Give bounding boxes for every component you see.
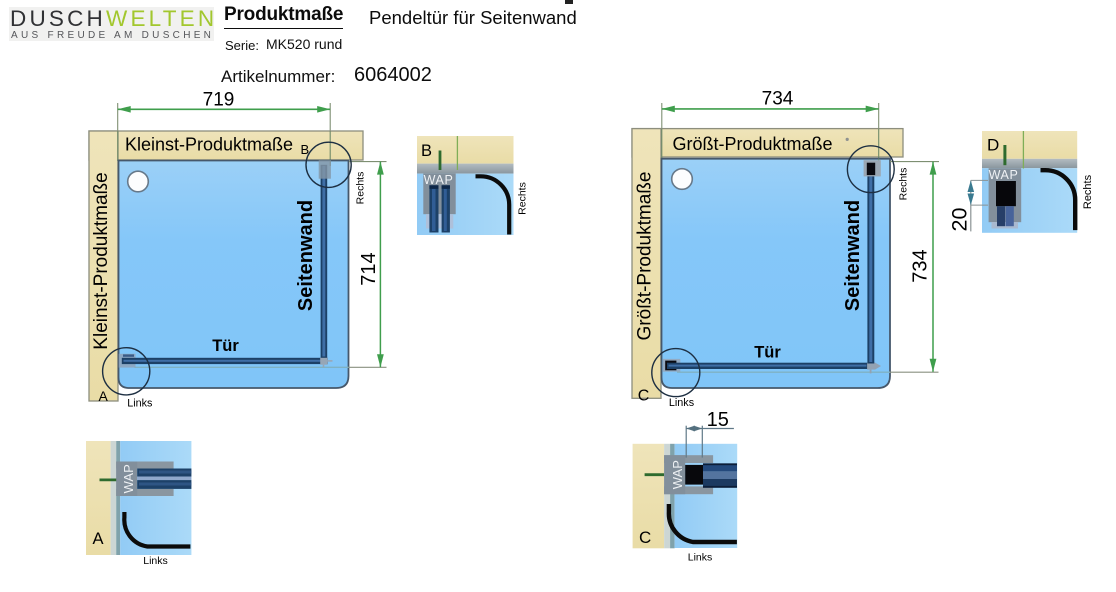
svg-text:Kleinst-Produktmaße: Kleinst-Produktmaße <box>91 172 112 349</box>
svg-text:B: B <box>421 142 432 160</box>
svg-text:Seitenwand: Seitenwand <box>842 200 864 311</box>
svg-text:WAP: WAP <box>670 460 685 489</box>
svg-text:20: 20 <box>948 208 972 232</box>
svg-text:Tür: Tür <box>212 337 239 355</box>
svg-text:719: 719 <box>203 90 235 111</box>
svg-text:WAP: WAP <box>424 173 454 187</box>
svg-text:Seitenwand: Seitenwand <box>295 200 317 311</box>
svg-text:Rechts: Rechts <box>354 172 366 205</box>
svg-text:15: 15 <box>707 409 729 431</box>
svg-text:Größt-Produktmaße: Größt-Produktmaße <box>672 134 832 154</box>
svg-text:714: 714 <box>358 252 380 285</box>
svg-text:A: A <box>99 388 109 404</box>
svg-text:Rechts: Rechts <box>897 168 909 201</box>
svg-text:Links: Links <box>688 552 713 564</box>
svg-text:C: C <box>639 528 651 547</box>
svg-text:WAP: WAP <box>121 464 136 493</box>
svg-text:D: D <box>987 136 999 155</box>
svg-text:WAP: WAP <box>989 168 1019 182</box>
svg-text:734: 734 <box>910 249 932 282</box>
svg-text:Links: Links <box>143 555 168 567</box>
svg-text:Tür: Tür <box>754 344 781 362</box>
svg-text:B: B <box>301 142 310 157</box>
svg-text:Kleinst-Produktmaße: Kleinst-Produktmaße <box>125 135 293 155</box>
svg-text:Rechts: Rechts <box>1082 174 1094 209</box>
svg-text:Links: Links <box>127 398 153 410</box>
svg-text:Größt-Produktmaße: Größt-Produktmaße <box>635 172 656 341</box>
svg-text:Links: Links <box>669 397 695 409</box>
svg-text:Rechts: Rechts <box>516 182 528 215</box>
svg-text:A: A <box>93 530 104 548</box>
svg-text:C: C <box>638 388 650 405</box>
svg-text:734: 734 <box>762 89 794 110</box>
